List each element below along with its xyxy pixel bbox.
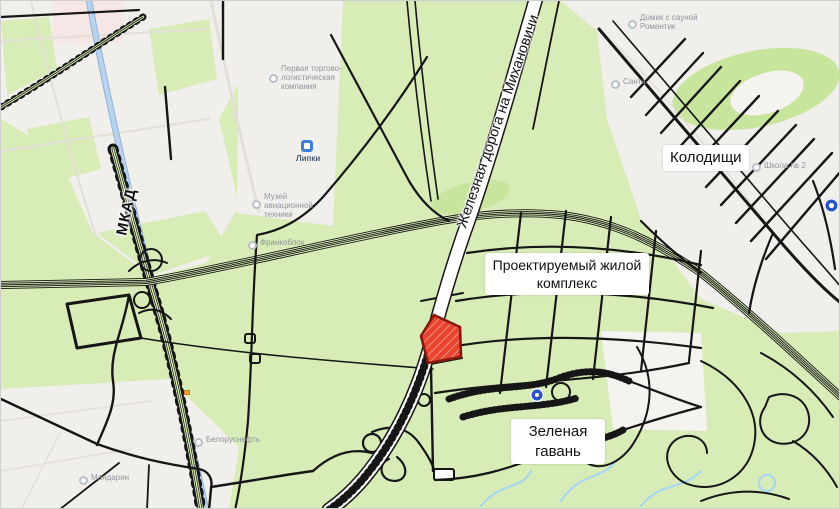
- poi-icon-frankoblok[interactable]: [248, 241, 257, 250]
- poi-label-school: Школа № 2: [764, 161, 806, 170]
- poi-icon-logistics[interactable]: [269, 74, 278, 83]
- poi-icon-santa[interactable]: [611, 80, 620, 89]
- map-graphic: [1, 1, 840, 509]
- poi-label-museum: Музей авиационной техники: [264, 192, 322, 220]
- poi-icon-sauna-house[interactable]: [628, 20, 637, 29]
- base-map-layer: [1, 1, 840, 509]
- label-kolodishchi: Колодищи: [663, 145, 749, 171]
- poi-label-sauna-house: Домик с сауной Романтик: [640, 13, 722, 31]
- poi-icon-belorusneft[interactable]: [194, 438, 203, 447]
- poi-label-belorusneft: Белоруснефть: [206, 435, 260, 444]
- poi-icon-mandarin[interactable]: [79, 476, 88, 485]
- poi-label-logistics: Первая торгово-логистическая компания: [281, 64, 351, 92]
- fuel-station-icon[interactable]: [184, 390, 190, 395]
- lipki-badge-icon[interactable]: [301, 140, 313, 152]
- label-planned-complex: Проектируемый жилой комплекс: [485, 253, 649, 295]
- poi-label-santa: Санта: [623, 77, 646, 86]
- poi-label-frankoblok: Франкоблок: [260, 238, 304, 247]
- label-green-harbor: Зеленая гавань: [511, 419, 605, 464]
- poi-label-lipki: Липки: [296, 154, 320, 163]
- map-canvas[interactable]: МКАД Железная дорога на Михановичи Колод…: [0, 0, 840, 509]
- poi-label-mandarin: Мандарин: [91, 473, 129, 482]
- poi-icon-museum[interactable]: [252, 200, 261, 209]
- sports-poi-icon[interactable]: [824, 198, 839, 213]
- transit-poi-icon[interactable]: [530, 388, 544, 402]
- poi-icon-school[interactable]: [752, 163, 761, 172]
